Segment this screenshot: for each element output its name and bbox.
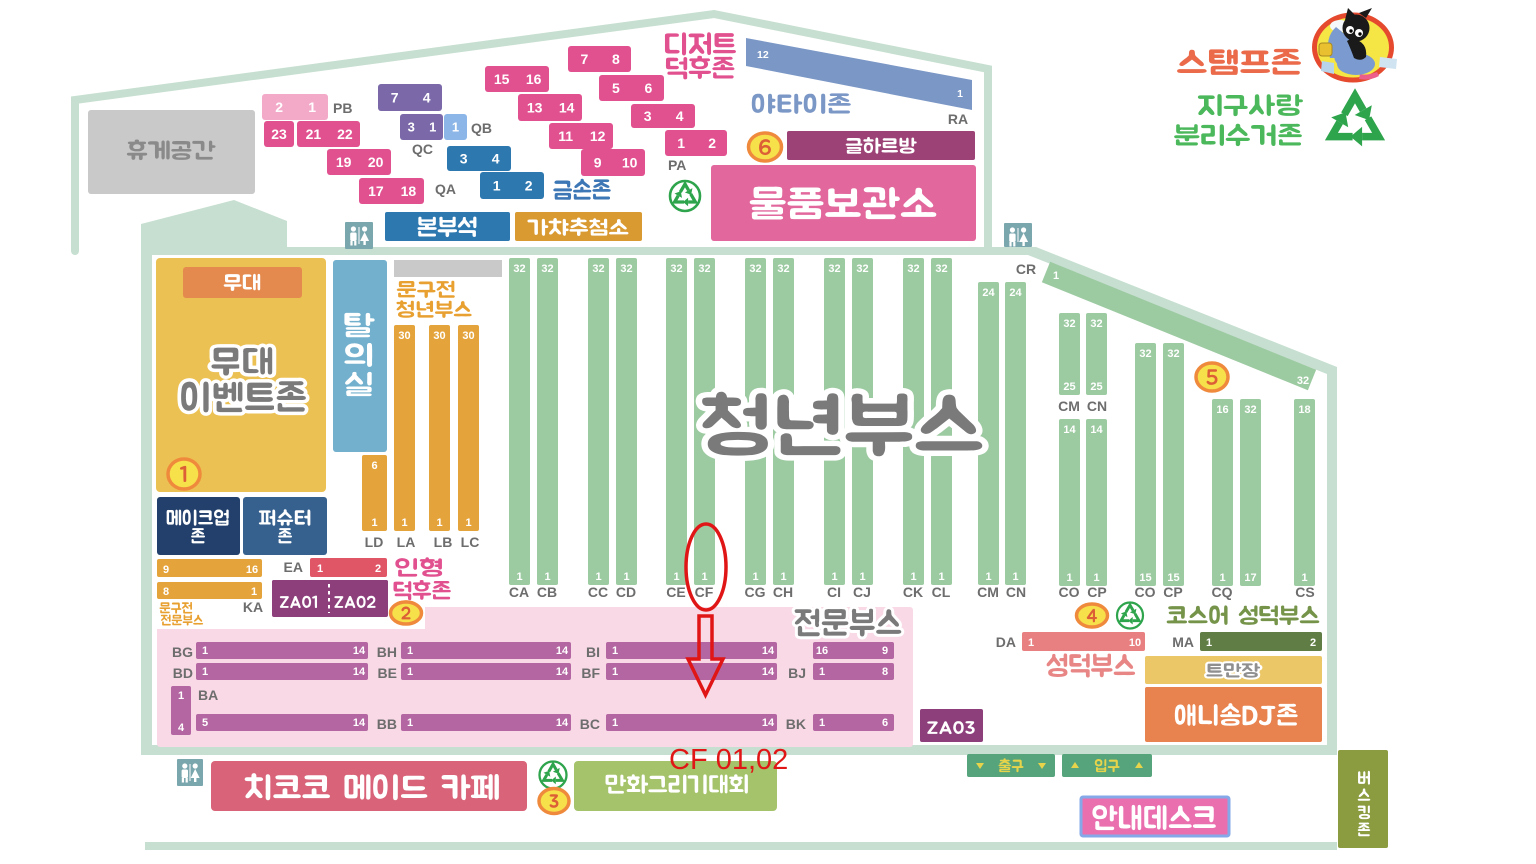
svg-text:PB: PB bbox=[333, 100, 352, 116]
svg-text:32: 32 bbox=[1244, 404, 1256, 416]
svg-text:30: 30 bbox=[462, 330, 474, 342]
svg-text:12: 12 bbox=[757, 49, 769, 61]
svg-text:BF: BF bbox=[581, 665, 600, 681]
svg-text:1: 1 bbox=[1219, 572, 1225, 584]
svg-text:1: 1 bbox=[1301, 572, 1307, 584]
svg-text:1: 1 bbox=[493, 178, 501, 194]
svg-text:BK: BK bbox=[786, 716, 806, 732]
svg-text:12: 12 bbox=[590, 128, 606, 144]
svg-text:BB: BB bbox=[377, 716, 397, 732]
svg-text:CI: CI bbox=[827, 584, 841, 600]
svg-text:32: 32 bbox=[541, 263, 553, 275]
svg-text:32: 32 bbox=[1297, 375, 1309, 387]
svg-text:LD: LD bbox=[365, 534, 384, 550]
svg-text:5: 5 bbox=[612, 80, 620, 96]
svg-text:8: 8 bbox=[612, 51, 620, 67]
svg-text:1: 1 bbox=[251, 586, 257, 598]
svg-text:CP: CP bbox=[1087, 584, 1106, 600]
svg-text:1: 1 bbox=[308, 99, 316, 115]
svg-text:1: 1 bbox=[202, 645, 208, 657]
svg-text:32: 32 bbox=[1167, 348, 1179, 360]
svg-text:4: 4 bbox=[492, 151, 500, 167]
svg-text:32: 32 bbox=[1090, 318, 1102, 330]
svg-text:1: 1 bbox=[780, 571, 786, 583]
svg-text:15: 15 bbox=[1139, 572, 1151, 584]
svg-text:20: 20 bbox=[368, 154, 384, 170]
svg-text:14: 14 bbox=[762, 717, 775, 729]
svg-text:DA: DA bbox=[996, 634, 1016, 650]
svg-text:16: 16 bbox=[526, 71, 542, 87]
svg-text:25: 25 bbox=[1063, 381, 1075, 393]
svg-text:32: 32 bbox=[698, 263, 710, 275]
svg-text:1: 1 bbox=[1093, 572, 1099, 584]
svg-text:1: 1 bbox=[831, 571, 837, 583]
svg-text:BI: BI bbox=[586, 644, 600, 660]
svg-text:MA: MA bbox=[1172, 634, 1194, 650]
svg-text:14: 14 bbox=[559, 100, 575, 116]
svg-text:32: 32 bbox=[935, 263, 947, 275]
svg-text:CS: CS bbox=[1295, 584, 1314, 600]
svg-text:CM: CM bbox=[1058, 398, 1080, 414]
svg-text:1: 1 bbox=[701, 571, 707, 583]
svg-text:1: 1 bbox=[371, 517, 377, 529]
svg-text:14: 14 bbox=[353, 645, 366, 657]
svg-text:1: 1 bbox=[401, 517, 407, 529]
svg-text:32: 32 bbox=[1139, 348, 1151, 360]
svg-text:14: 14 bbox=[556, 666, 569, 678]
svg-text:6: 6 bbox=[645, 80, 653, 96]
svg-text:32: 32 bbox=[749, 263, 761, 275]
svg-text:4: 4 bbox=[178, 722, 185, 734]
svg-text:CJ: CJ bbox=[853, 584, 871, 600]
svg-text:QB: QB bbox=[471, 120, 492, 136]
svg-text:1: 1 bbox=[1012, 571, 1018, 583]
svg-text:CF: CF bbox=[695, 584, 714, 600]
svg-text:CH: CH bbox=[773, 584, 793, 600]
svg-text:CD: CD bbox=[616, 584, 636, 600]
svg-text:QC: QC bbox=[412, 141, 433, 157]
svg-text:1: 1 bbox=[452, 120, 459, 135]
svg-text:18: 18 bbox=[1298, 404, 1310, 416]
svg-text:15: 15 bbox=[1167, 572, 1179, 584]
svg-text:32: 32 bbox=[620, 263, 632, 275]
svg-text:2: 2 bbox=[525, 178, 533, 194]
svg-text:18: 18 bbox=[401, 183, 417, 199]
svg-text:14: 14 bbox=[1063, 424, 1076, 436]
svg-text:BA: BA bbox=[198, 687, 218, 703]
svg-text:4: 4 bbox=[423, 90, 431, 106]
svg-text:EA: EA bbox=[284, 559, 303, 575]
svg-text:2: 2 bbox=[275, 99, 283, 115]
svg-text:1: 1 bbox=[407, 666, 413, 678]
svg-text:1: 1 bbox=[910, 571, 916, 583]
svg-text:32: 32 bbox=[592, 263, 604, 275]
svg-text:19: 19 bbox=[336, 154, 352, 170]
svg-text:1: 1 bbox=[673, 571, 679, 583]
svg-text:25: 25 bbox=[1090, 381, 1102, 393]
svg-text:1: 1 bbox=[752, 571, 758, 583]
svg-text:1: 1 bbox=[1206, 637, 1212, 649]
svg-text:CP: CP bbox=[1163, 584, 1182, 600]
svg-text:1: 1 bbox=[612, 645, 618, 657]
svg-text:BG: BG bbox=[172, 644, 193, 660]
svg-text:1: 1 bbox=[544, 571, 550, 583]
svg-text:1: 1 bbox=[407, 645, 413, 657]
svg-text:CK: CK bbox=[903, 584, 923, 600]
svg-text:8: 8 bbox=[882, 666, 888, 678]
svg-text:14: 14 bbox=[1090, 424, 1103, 436]
svg-text:2: 2 bbox=[375, 563, 381, 575]
svg-text:17: 17 bbox=[368, 183, 384, 199]
svg-text:7: 7 bbox=[391, 90, 399, 106]
svg-text:32: 32 bbox=[828, 263, 840, 275]
svg-text:CC: CC bbox=[588, 584, 608, 600]
svg-text:24: 24 bbox=[1009, 287, 1022, 299]
svg-text:30: 30 bbox=[433, 330, 445, 342]
svg-text:CA: CA bbox=[509, 584, 529, 600]
svg-text:BD: BD bbox=[173, 665, 193, 681]
svg-text:4: 4 bbox=[676, 108, 684, 124]
svg-text:6: 6 bbox=[371, 460, 377, 472]
svg-text:LC: LC bbox=[461, 534, 480, 550]
svg-text:1: 1 bbox=[436, 517, 442, 529]
svg-text:KA: KA bbox=[243, 599, 263, 615]
svg-text:1: 1 bbox=[1053, 270, 1059, 282]
svg-text:32: 32 bbox=[777, 263, 789, 275]
svg-text:32: 32 bbox=[907, 263, 919, 275]
svg-text:3: 3 bbox=[460, 151, 468, 167]
svg-text:14: 14 bbox=[556, 717, 569, 729]
svg-text:32: 32 bbox=[1063, 318, 1075, 330]
svg-text:CN: CN bbox=[1087, 398, 1107, 414]
svg-text:2: 2 bbox=[1310, 637, 1316, 649]
svg-text:BC: BC bbox=[580, 716, 600, 732]
svg-text:LA: LA bbox=[397, 534, 416, 550]
svg-text:CB: CB bbox=[537, 584, 557, 600]
svg-text:5: 5 bbox=[202, 717, 208, 729]
svg-text:16: 16 bbox=[1216, 404, 1228, 416]
svg-text:CF 01,02: CF 01,02 bbox=[669, 744, 788, 776]
svg-text:1: 1 bbox=[595, 571, 601, 583]
svg-text:CO: CO bbox=[1059, 584, 1080, 600]
svg-text:BH: BH bbox=[377, 644, 397, 660]
svg-text:1: 1 bbox=[1028, 637, 1034, 649]
svg-text:10: 10 bbox=[1129, 637, 1141, 649]
svg-text:RA: RA bbox=[948, 111, 968, 127]
svg-text:1: 1 bbox=[938, 571, 944, 583]
svg-text:32: 32 bbox=[670, 263, 682, 275]
svg-text:14: 14 bbox=[556, 645, 569, 657]
svg-text:1: 1 bbox=[957, 88, 963, 100]
svg-text:17: 17 bbox=[1244, 572, 1256, 584]
svg-text:8: 8 bbox=[163, 586, 169, 598]
svg-text:3: 3 bbox=[408, 120, 415, 135]
svg-text:1: 1 bbox=[819, 666, 825, 678]
svg-text:1: 1 bbox=[516, 571, 522, 583]
svg-text:6: 6 bbox=[882, 717, 888, 729]
svg-text:1: 1 bbox=[429, 120, 436, 135]
svg-text:16: 16 bbox=[816, 645, 828, 657]
svg-text:CQ: CQ bbox=[1212, 584, 1233, 600]
svg-text:21: 21 bbox=[306, 126, 322, 142]
svg-text:16: 16 bbox=[246, 564, 258, 576]
svg-text:CM: CM bbox=[977, 584, 999, 600]
svg-text:14: 14 bbox=[353, 717, 366, 729]
svg-text:1: 1 bbox=[677, 135, 685, 151]
svg-text:14: 14 bbox=[762, 645, 775, 657]
svg-text:1: 1 bbox=[612, 717, 618, 729]
svg-text:1: 1 bbox=[612, 666, 618, 678]
svg-text:1: 1 bbox=[985, 571, 991, 583]
svg-text:PA: PA bbox=[668, 157, 686, 173]
svg-text:1: 1 bbox=[1066, 572, 1072, 584]
svg-text:15: 15 bbox=[494, 71, 510, 87]
svg-text:1: 1 bbox=[623, 571, 629, 583]
svg-text:2: 2 bbox=[708, 135, 716, 151]
svg-text:10: 10 bbox=[622, 155, 638, 171]
svg-text:13: 13 bbox=[527, 100, 543, 116]
svg-text:3: 3 bbox=[644, 108, 652, 124]
svg-text:LB: LB bbox=[434, 534, 453, 550]
svg-text:1: 1 bbox=[407, 717, 413, 729]
svg-text:1: 1 bbox=[465, 517, 471, 529]
svg-text:CO: CO bbox=[1135, 584, 1156, 600]
svg-text:CE: CE bbox=[666, 584, 685, 600]
svg-text:1: 1 bbox=[819, 717, 825, 729]
svg-text:CG: CG bbox=[745, 584, 766, 600]
svg-text:9: 9 bbox=[163, 564, 169, 576]
svg-text:14: 14 bbox=[762, 666, 775, 678]
svg-text:9: 9 bbox=[882, 645, 888, 657]
svg-text:32: 32 bbox=[513, 263, 525, 275]
svg-text:CR: CR bbox=[1016, 261, 1036, 277]
svg-text:7: 7 bbox=[580, 51, 588, 67]
svg-text:QA: QA bbox=[435, 181, 456, 197]
svg-text:24: 24 bbox=[982, 287, 995, 299]
svg-text:14: 14 bbox=[353, 666, 366, 678]
svg-text:32: 32 bbox=[856, 263, 868, 275]
svg-text:1: 1 bbox=[317, 563, 323, 575]
svg-text:CN: CN bbox=[1006, 584, 1026, 600]
svg-text:30: 30 bbox=[398, 330, 410, 342]
svg-text:11: 11 bbox=[558, 128, 573, 144]
svg-text:1: 1 bbox=[859, 571, 865, 583]
svg-text:23: 23 bbox=[271, 126, 287, 142]
svg-text:1: 1 bbox=[202, 666, 208, 678]
svg-text:22: 22 bbox=[337, 126, 353, 142]
svg-text:1: 1 bbox=[178, 690, 184, 702]
svg-text:BJ: BJ bbox=[788, 665, 806, 681]
svg-text:CL: CL bbox=[932, 584, 951, 600]
svg-text:9: 9 bbox=[594, 155, 602, 171]
svg-text:BE: BE bbox=[378, 665, 397, 681]
